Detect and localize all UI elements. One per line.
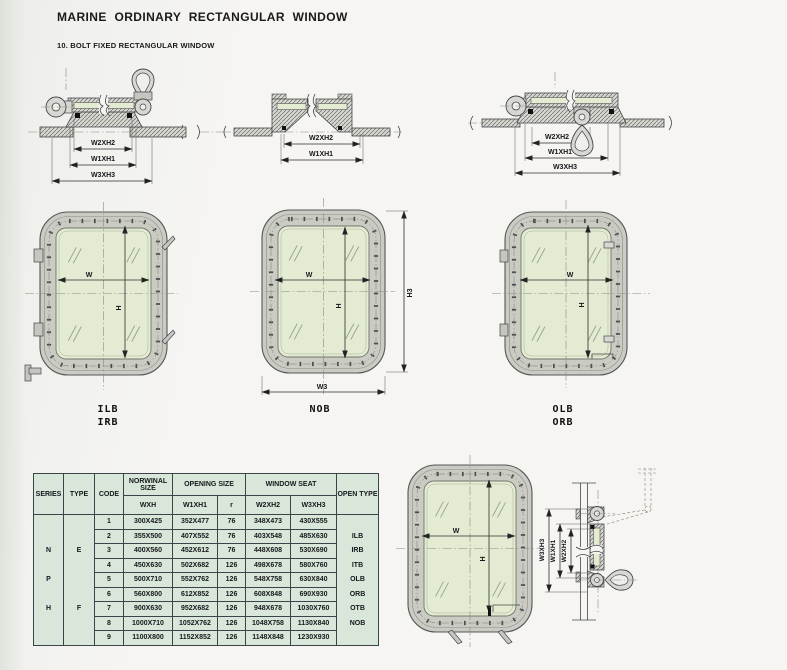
header-w1xh1: W1XH1 <box>173 496 218 515</box>
cross-section-top-left: W2XH2 W1XH1 W3XH3 <box>28 66 223 201</box>
frame-section <box>66 95 142 127</box>
dim-label-h: H <box>579 302 586 307</box>
cell-r: 126 <box>218 558 246 573</box>
cell-w3xh3: 1130X840 <box>291 616 337 631</box>
cell-w1xh1: 612X852 <box>173 587 218 602</box>
hinge-icon <box>41 68 73 117</box>
dim-label-h3: H3 <box>407 288 414 297</box>
dim-label-h: H <box>116 305 123 310</box>
toggle-handle-icon <box>571 107 593 156</box>
dim-label-w1xh1: W1XH1 <box>91 156 115 163</box>
open-type-orb: ORB <box>337 591 378 598</box>
cell-w1xh1: 452X612 <box>173 544 218 559</box>
open-position-phantom <box>602 468 658 524</box>
header-type: TYPE <box>64 474 95 515</box>
cell-w2xh2: 548X758 <box>246 573 291 588</box>
cell-r: 126 <box>218 573 246 588</box>
cell-r: 76 <box>218 515 246 530</box>
dim-label-w1xh1: W1XH1 <box>550 539 557 562</box>
dim-label-h: H <box>336 303 343 308</box>
dim-label-w2xh2: W2XH2 <box>91 140 115 147</box>
toggle-handle-icon <box>132 69 154 115</box>
cell-r: 76 <box>218 544 246 559</box>
cell-wxh: 900X630 <box>124 602 173 617</box>
dim-label-w2xh2: W2XH2 <box>561 539 568 562</box>
frame-section <box>590 524 604 570</box>
cell-code: 5 <box>95 573 124 588</box>
window-front-olb-orb: W H <box>492 198 652 390</box>
dim-label-w: W <box>306 272 313 279</box>
header-open-type: OPEN TYPE <box>337 474 379 515</box>
dim-label-w3: W3 <box>317 384 328 391</box>
open-type-olb: OLB <box>337 576 378 583</box>
seal-mark <box>75 113 80 118</box>
dim-label-w: W <box>453 528 460 535</box>
cell-w2xh2: 348X473 <box>246 515 291 530</box>
seal-mark <box>127 113 132 118</box>
series-label-p: P <box>34 576 63 583</box>
frame-section <box>517 90 626 123</box>
label-orb: ORB <box>540 416 586 429</box>
type-label-f: F <box>64 605 94 612</box>
series-cell: N P H <box>34 515 64 646</box>
page-edge-shading <box>0 0 26 670</box>
type-cell: E F <box>64 515 95 646</box>
label-irb: IRB <box>85 416 131 429</box>
cell-w3xh3: 630X840 <box>291 573 337 588</box>
cell-wxh: 450X630 <box>124 558 173 573</box>
window-front-nob: W H H3 W3 <box>250 196 425 400</box>
open-type-cell: ILB IRB ITB OLB ORB OTB NOB <box>337 515 379 646</box>
cell-r: 126 <box>218 631 246 646</box>
dim-label-w3xh3: W3XH3 <box>539 538 546 561</box>
dim-label-w3xh3: W3XH3 <box>91 172 115 179</box>
dim-label-w1xh1: W1XH1 <box>548 149 572 156</box>
cross-section-top-middle: W2XH2 W1XH1 <box>222 82 402 187</box>
cell-w2xh2: 403X548 <box>246 529 291 544</box>
cell-w2xh2: 1148X848 <box>246 631 291 646</box>
header-opening-size: OPENING SIZE <box>173 474 246 496</box>
cell-code: 9 <box>95 631 124 646</box>
cell-w2xh2: 608X848 <box>246 587 291 602</box>
cell-wxh: 300X425 <box>124 515 173 530</box>
dim-label-w2xh2: W2XH2 <box>545 134 569 141</box>
cell-w2xh2: 1048X758 <box>246 616 291 631</box>
dim-label-w: W <box>567 272 574 279</box>
open-type-otb: OTB <box>337 605 378 612</box>
cross-section-side: W3XH3 W1XH1 W2XH2 <box>535 452 785 670</box>
frame-section <box>272 94 352 132</box>
cell-w2xh2: 948X678 <box>246 602 291 617</box>
label-ilb: ILB <box>85 403 131 416</box>
open-type-ilb: ILB <box>337 533 378 540</box>
cell-code: 1 <box>95 515 124 530</box>
header-series: SERIES <box>34 474 64 515</box>
window-type-label-middle: NOB <box>297 403 343 416</box>
cell-code: 6 <box>95 587 124 602</box>
dim-label-w3xh3: W3XH3 <box>553 164 577 171</box>
header-nominal-size: NORWINAL SIZE <box>124 474 173 496</box>
cell-w3xh3: 690X930 <box>291 587 337 602</box>
header-r: r <box>218 496 246 515</box>
cell-w1xh1: 952X682 <box>173 602 218 617</box>
cell-w1xh1: 1152X852 <box>173 631 218 646</box>
cell-code: 3 <box>95 544 124 559</box>
series-label-n: N <box>34 547 63 554</box>
header-code: CODE <box>95 474 124 515</box>
header-w3xh3: W3XH3 <box>291 496 337 515</box>
catalog-page: MARINE ORDINARY RECTANGULAR WINDOW 10. B… <box>0 0 787 670</box>
cell-wxh: 500X710 <box>124 573 173 588</box>
cell-w2xh2: 498X678 <box>246 558 291 573</box>
label-olb: OLB <box>540 403 586 416</box>
cell-w3xh3: 530X690 <box>291 544 337 559</box>
dim-label-w2xh2: W2XH2 <box>309 135 333 142</box>
cell-w1xh1: 552X762 <box>173 573 218 588</box>
cell-r: 126 <box>218 587 246 602</box>
header-wxh: WXH <box>124 496 173 515</box>
open-type-itb: ITB <box>337 562 378 569</box>
window-type-label-left: ILB IRB <box>85 403 131 429</box>
cell-w3xh3: 580X760 <box>291 558 337 573</box>
cell-r: 126 <box>218 616 246 631</box>
cell-w3xh3: 1030X760 <box>291 602 337 617</box>
table-row: N P H E F 1 300X425 352X477 76 348X473 4… <box>34 515 379 530</box>
open-type-nob: NOB <box>337 620 378 627</box>
cell-w3xh3: 485X630 <box>291 529 337 544</box>
cell-code: 8 <box>95 616 124 631</box>
label-nob: NOB <box>297 403 343 416</box>
type-label-e: E <box>64 547 94 554</box>
cell-wxh: 355X500 <box>124 529 173 544</box>
cell-wxh: 560X800 <box>124 587 173 602</box>
cell-wxh: 1100X800 <box>124 631 173 646</box>
window-front-ilb-irb: W H <box>25 200 180 392</box>
open-type-irb: IRB <box>337 547 378 554</box>
header-window-seat: WINDOW SEAT <box>246 474 337 496</box>
cell-code: 2 <box>95 529 124 544</box>
window-type-label-right: OLB ORB <box>540 403 586 429</box>
spec-table: SERIES TYPE CODE NORWINAL SIZE OPENING S… <box>33 473 379 646</box>
cell-code: 7 <box>95 602 124 617</box>
cell-wxh: 400X560 <box>124 544 173 559</box>
cell-w1xh1: 1052X762 <box>173 616 218 631</box>
dim-label-w: W <box>86 272 93 279</box>
cell-w1xh1: 407X552 <box>173 529 218 544</box>
page-title: MARINE ORDINARY RECTANGULAR WINDOW <box>57 10 348 24</box>
window-front-bottom: W H <box>396 453 548 651</box>
cell-code: 4 <box>95 558 124 573</box>
dim-label-h: H <box>480 556 487 561</box>
dim-label-w1xh1: W1XH1 <box>309 151 333 158</box>
cell-w3xh3: 430X555 <box>291 515 337 530</box>
cross-section-top-right: W2XH2 W1XH1 W3XH3 <box>468 70 683 200</box>
cell-w2xh2: 448X608 <box>246 544 291 559</box>
series-label-h: H <box>34 605 63 612</box>
cell-wxh: 1000X710 <box>124 616 173 631</box>
cell-w1xh1: 352X477 <box>173 515 218 530</box>
cell-w3xh3: 1230X930 <box>291 631 337 646</box>
cell-r: 126 <box>218 602 246 617</box>
cell-w1xh1: 502X682 <box>173 558 218 573</box>
header-w2xh2: W2XH2 <box>246 496 291 515</box>
cell-r: 76 <box>218 529 246 544</box>
section-heading: 10. BOLT FIXED RECTANGULAR WINDOW <box>57 41 215 50</box>
